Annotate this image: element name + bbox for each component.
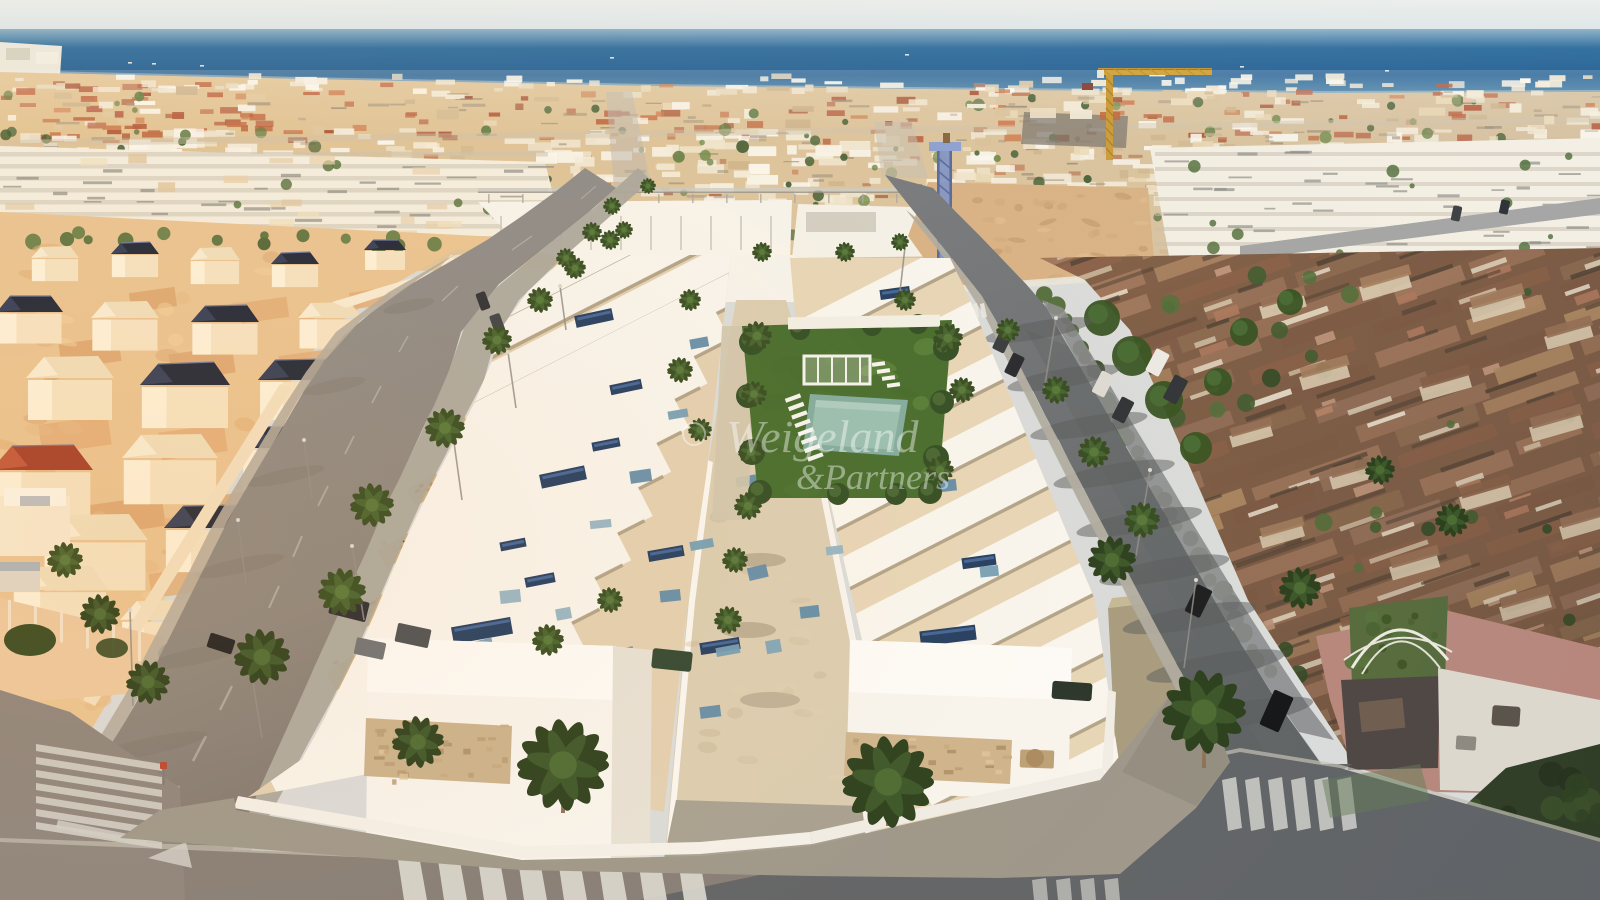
svg-text:&Partners: &Partners	[796, 457, 950, 497]
svg-text:Weigeland: Weigeland	[726, 411, 919, 462]
